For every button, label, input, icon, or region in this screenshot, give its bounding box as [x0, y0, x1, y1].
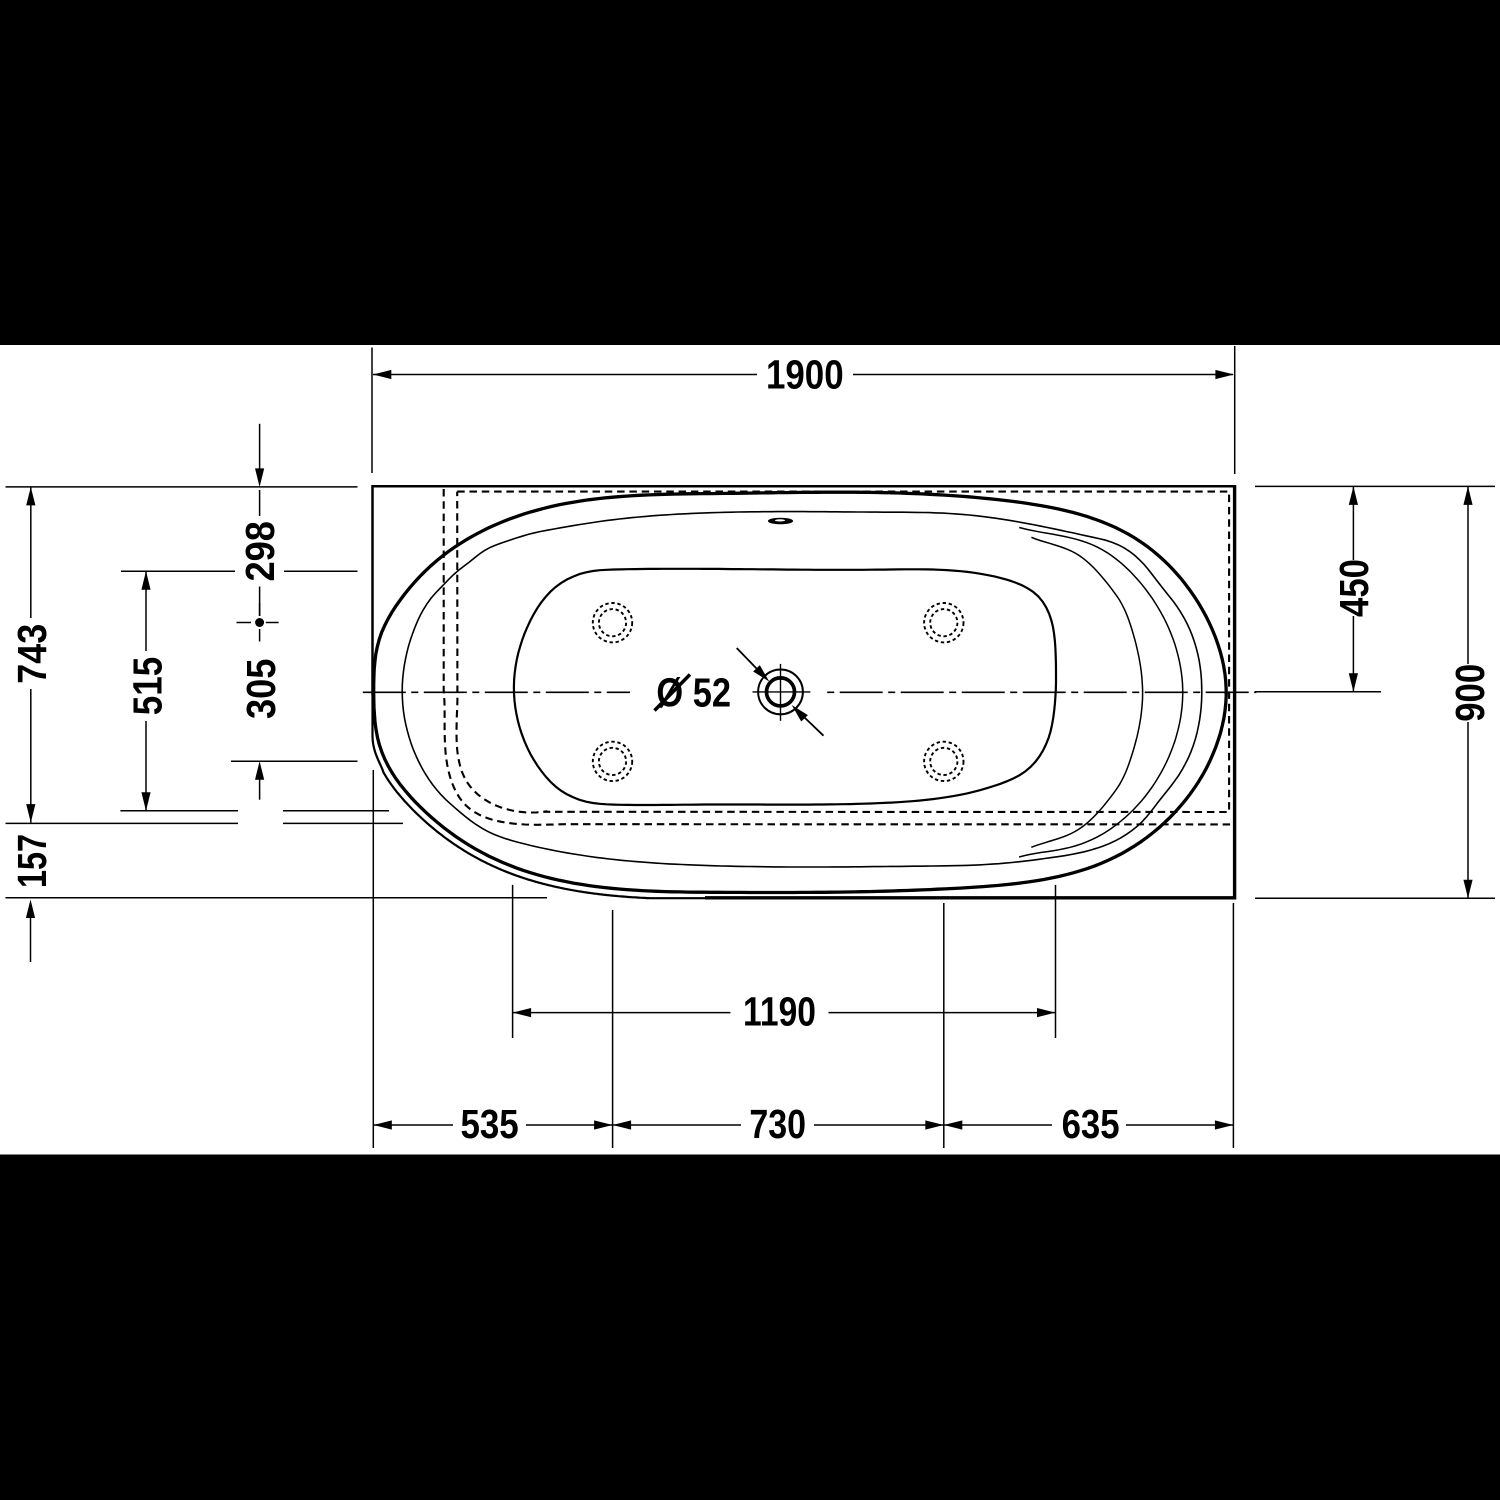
svg-text:635: 635 — [1062, 1101, 1120, 1147]
svg-text:Ø 52: Ø 52 — [656, 670, 731, 716]
svg-text:730: 730 — [749, 1101, 806, 1147]
svg-text:743: 743 — [9, 624, 55, 684]
svg-text:900: 900 — [1447, 664, 1493, 722]
svg-text:515: 515 — [125, 657, 171, 716]
svg-text:305: 305 — [238, 659, 284, 720]
svg-text:298: 298 — [237, 521, 283, 582]
svg-text:157: 157 — [9, 834, 55, 888]
svg-text:1900: 1900 — [766, 351, 844, 397]
svg-text:450: 450 — [1331, 559, 1377, 617]
svg-text:1190: 1190 — [743, 989, 816, 1035]
svg-text:535: 535 — [460, 1101, 518, 1147]
